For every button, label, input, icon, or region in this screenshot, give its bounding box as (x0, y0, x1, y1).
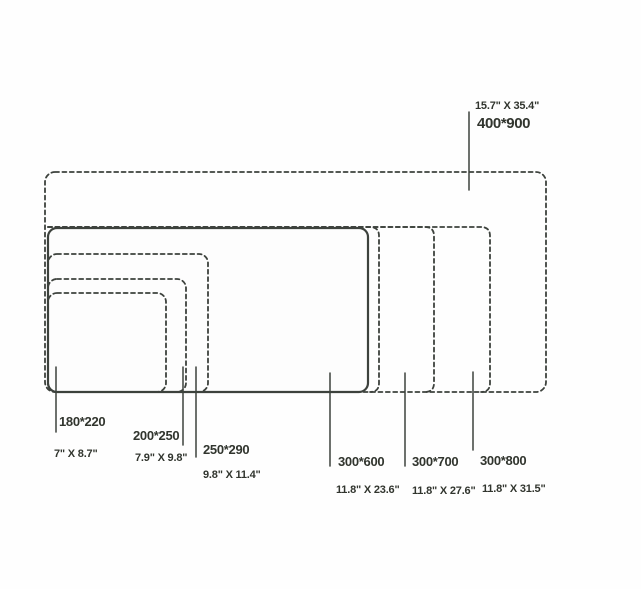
label-250x290-mm: 250*290 (203, 443, 249, 457)
label-200x250-inches: 7.9" X 9.8" (135, 452, 187, 464)
label-300x600-inches: 11.8" X 23.6" (336, 484, 400, 496)
label-300x800-mm: 300*800 (480, 454, 526, 468)
label-180x220-mm: 180*220 (59, 415, 105, 429)
label-250x290-inches: 9.8" X 11.4" (203, 469, 261, 481)
size-comparison-diagram: 15.7" X 35.4" 400*900 180*220 7" X 8.7" … (0, 0, 641, 589)
label-180x220-inches: 7" X 8.7" (54, 448, 98, 460)
label-300x800-inches: 11.8" X 31.5" (482, 483, 546, 495)
label-300x600-mm: 300*600 (338, 455, 384, 469)
size-diagram-canvas (0, 0, 641, 589)
label-400x900-mm: 400*900 (477, 116, 530, 133)
label-300x700-inches: 11.8" X 27.6" (412, 485, 476, 497)
label-400x900-inches: 15.7" X 35.4" (475, 100, 539, 112)
label-300x700-mm: 300*700 (412, 455, 458, 469)
label-200x250-mm: 200*250 (133, 429, 179, 443)
